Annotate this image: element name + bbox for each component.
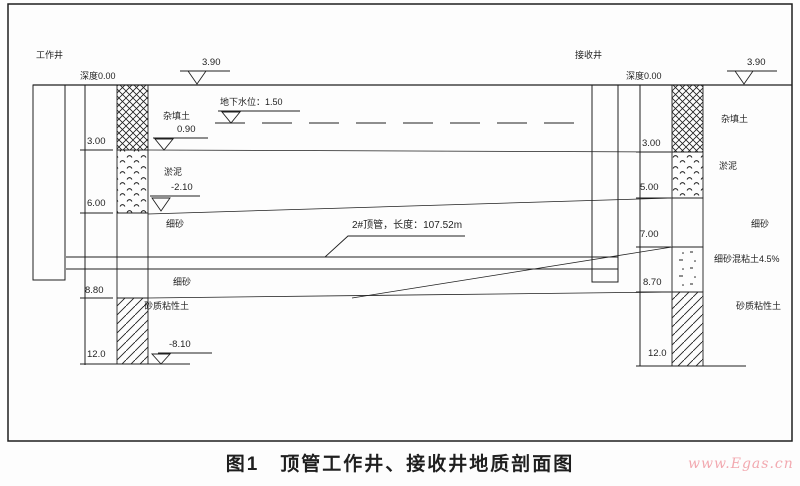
right-depth-7: 7.00 bbox=[640, 230, 659, 240]
left-stratum-sand-lower-label: 细砂 bbox=[173, 277, 191, 287]
right-depth-12: 12.0 bbox=[648, 349, 667, 359]
left-surface-elevation: 3.90 bbox=[202, 58, 221, 68]
figure-geological-section: 工作井 深度0.00 3.90 3.00 6.00 8.80 12.0 杂填土 … bbox=[0, 0, 800, 486]
left-borehole-column bbox=[117, 85, 148, 364]
right-stratum-sandy-clay-label: 砂质粘性土 bbox=[736, 301, 781, 311]
right-surface-elevation: 3.90 bbox=[747, 58, 766, 68]
left-bottom-elevation: -8.10 bbox=[169, 340, 191, 350]
jacking-pipe-lines bbox=[66, 257, 618, 269]
left-depth-12: 12.0 bbox=[87, 350, 106, 360]
section-drawing bbox=[0, 0, 800, 486]
right-shaft-title: 接收井 bbox=[575, 50, 602, 60]
left-stratum-fill-label: 杂填土 bbox=[163, 111, 190, 121]
left-shaft-wall bbox=[33, 85, 85, 365]
right-stratum-sand-clay-mix-label: 细砂混粘土4.5% bbox=[714, 254, 780, 264]
left-silt-elevation: -2.10 bbox=[171, 183, 193, 193]
left-shaft-title: 工作井 bbox=[36, 50, 63, 60]
left-depth-88: 8.80 bbox=[85, 286, 104, 296]
left-stratum-silt-label: 淤泥 bbox=[164, 167, 182, 177]
left-depth-6: 6.00 bbox=[87, 199, 106, 209]
left-fill-elevation-icon bbox=[153, 138, 208, 150]
pipe-label-leader bbox=[325, 236, 465, 257]
watermark-text: www.Egas.cn bbox=[688, 456, 794, 472]
pipe-label: 2#顶管，长度：107.52m bbox=[352, 221, 462, 231]
right-depth-5: 5.00 bbox=[640, 183, 659, 193]
right-stratum-silt-label: 淤泥 bbox=[719, 161, 737, 171]
right-depth-87: 8.70 bbox=[643, 278, 662, 288]
left-depth-3: 3.00 bbox=[87, 137, 106, 147]
left-datum-label: 深度0.00 bbox=[80, 71, 116, 81]
right-borehole-column bbox=[672, 85, 703, 366]
groundwater-level-label: 地下水位：1.50 bbox=[220, 97, 283, 107]
right-stratum-sand-label: 细砂 bbox=[751, 219, 769, 229]
left-fill-elevation: 0.90 bbox=[177, 125, 196, 135]
left-silt-elevation-icon bbox=[150, 196, 200, 211]
right-stratum-fill-label: 杂填土 bbox=[721, 114, 748, 124]
right-surface-elevation-icon bbox=[727, 71, 777, 84]
right-shaft-wall bbox=[592, 85, 640, 366]
right-datum-label: 深度0.00 bbox=[626, 71, 662, 81]
left-surface-elevation-icon bbox=[180, 71, 230, 84]
left-stratum-sand-upper-label: 细砂 bbox=[166, 219, 184, 229]
left-bottom-elevation-icon bbox=[152, 353, 212, 364]
right-depth-3: 3.00 bbox=[642, 139, 661, 149]
figure-caption: 图1 顶管工作井、接收井地质剖面图 bbox=[0, 449, 800, 476]
groundwater-level-icon bbox=[215, 111, 578, 123]
left-stratum-sandy-clay-label: 砂质粘性土 bbox=[144, 301, 189, 311]
